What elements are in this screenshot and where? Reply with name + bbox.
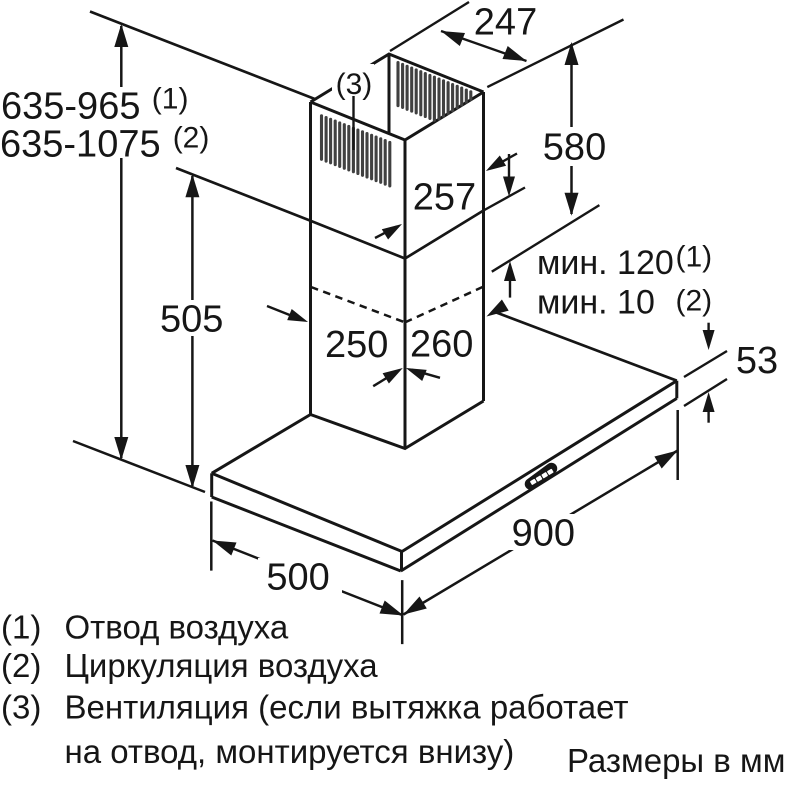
svg-text:Отвод воздуха: Отвод воздуха [65,609,289,646]
svg-text:Циркуляция воздуха: Циркуляция воздуха [65,647,379,684]
svg-text:мин. 120: мин. 120 [537,244,674,282]
svg-text:635-965: 635-965 [1,86,140,128]
svg-text:на отвод, монтируется внизу): на отвод, монтируется внизу) [65,733,515,770]
svg-text:(1): (1) [676,241,713,274]
svg-text:мин. 10: мин. 10 [537,284,655,322]
svg-text:500: 500 [266,557,329,599]
svg-text:(1): (1) [152,83,189,116]
svg-text:Вентиляция (если вытяжка работ: Вентиляция (если вытяжка работает [65,689,629,726]
svg-text:(3): (3) [1,689,41,726]
svg-text:Размеры в мм: Размеры в мм [567,742,785,779]
svg-text:(2): (2) [676,285,713,318]
svg-text:(1): (1) [1,609,41,646]
svg-text:257: 257 [413,177,476,219]
svg-text:53: 53 [736,340,778,382]
svg-text:247: 247 [474,2,537,44]
svg-text:(3): (3) [336,68,373,101]
svg-text:900: 900 [512,513,575,555]
svg-text:580: 580 [543,127,606,169]
svg-text:250: 250 [325,324,388,366]
svg-text:(2): (2) [173,122,210,155]
svg-text:635-1075: 635-1075 [0,124,161,166]
svg-text:505: 505 [160,299,223,341]
svg-text:(2): (2) [1,647,41,684]
svg-text:260: 260 [410,324,473,366]
